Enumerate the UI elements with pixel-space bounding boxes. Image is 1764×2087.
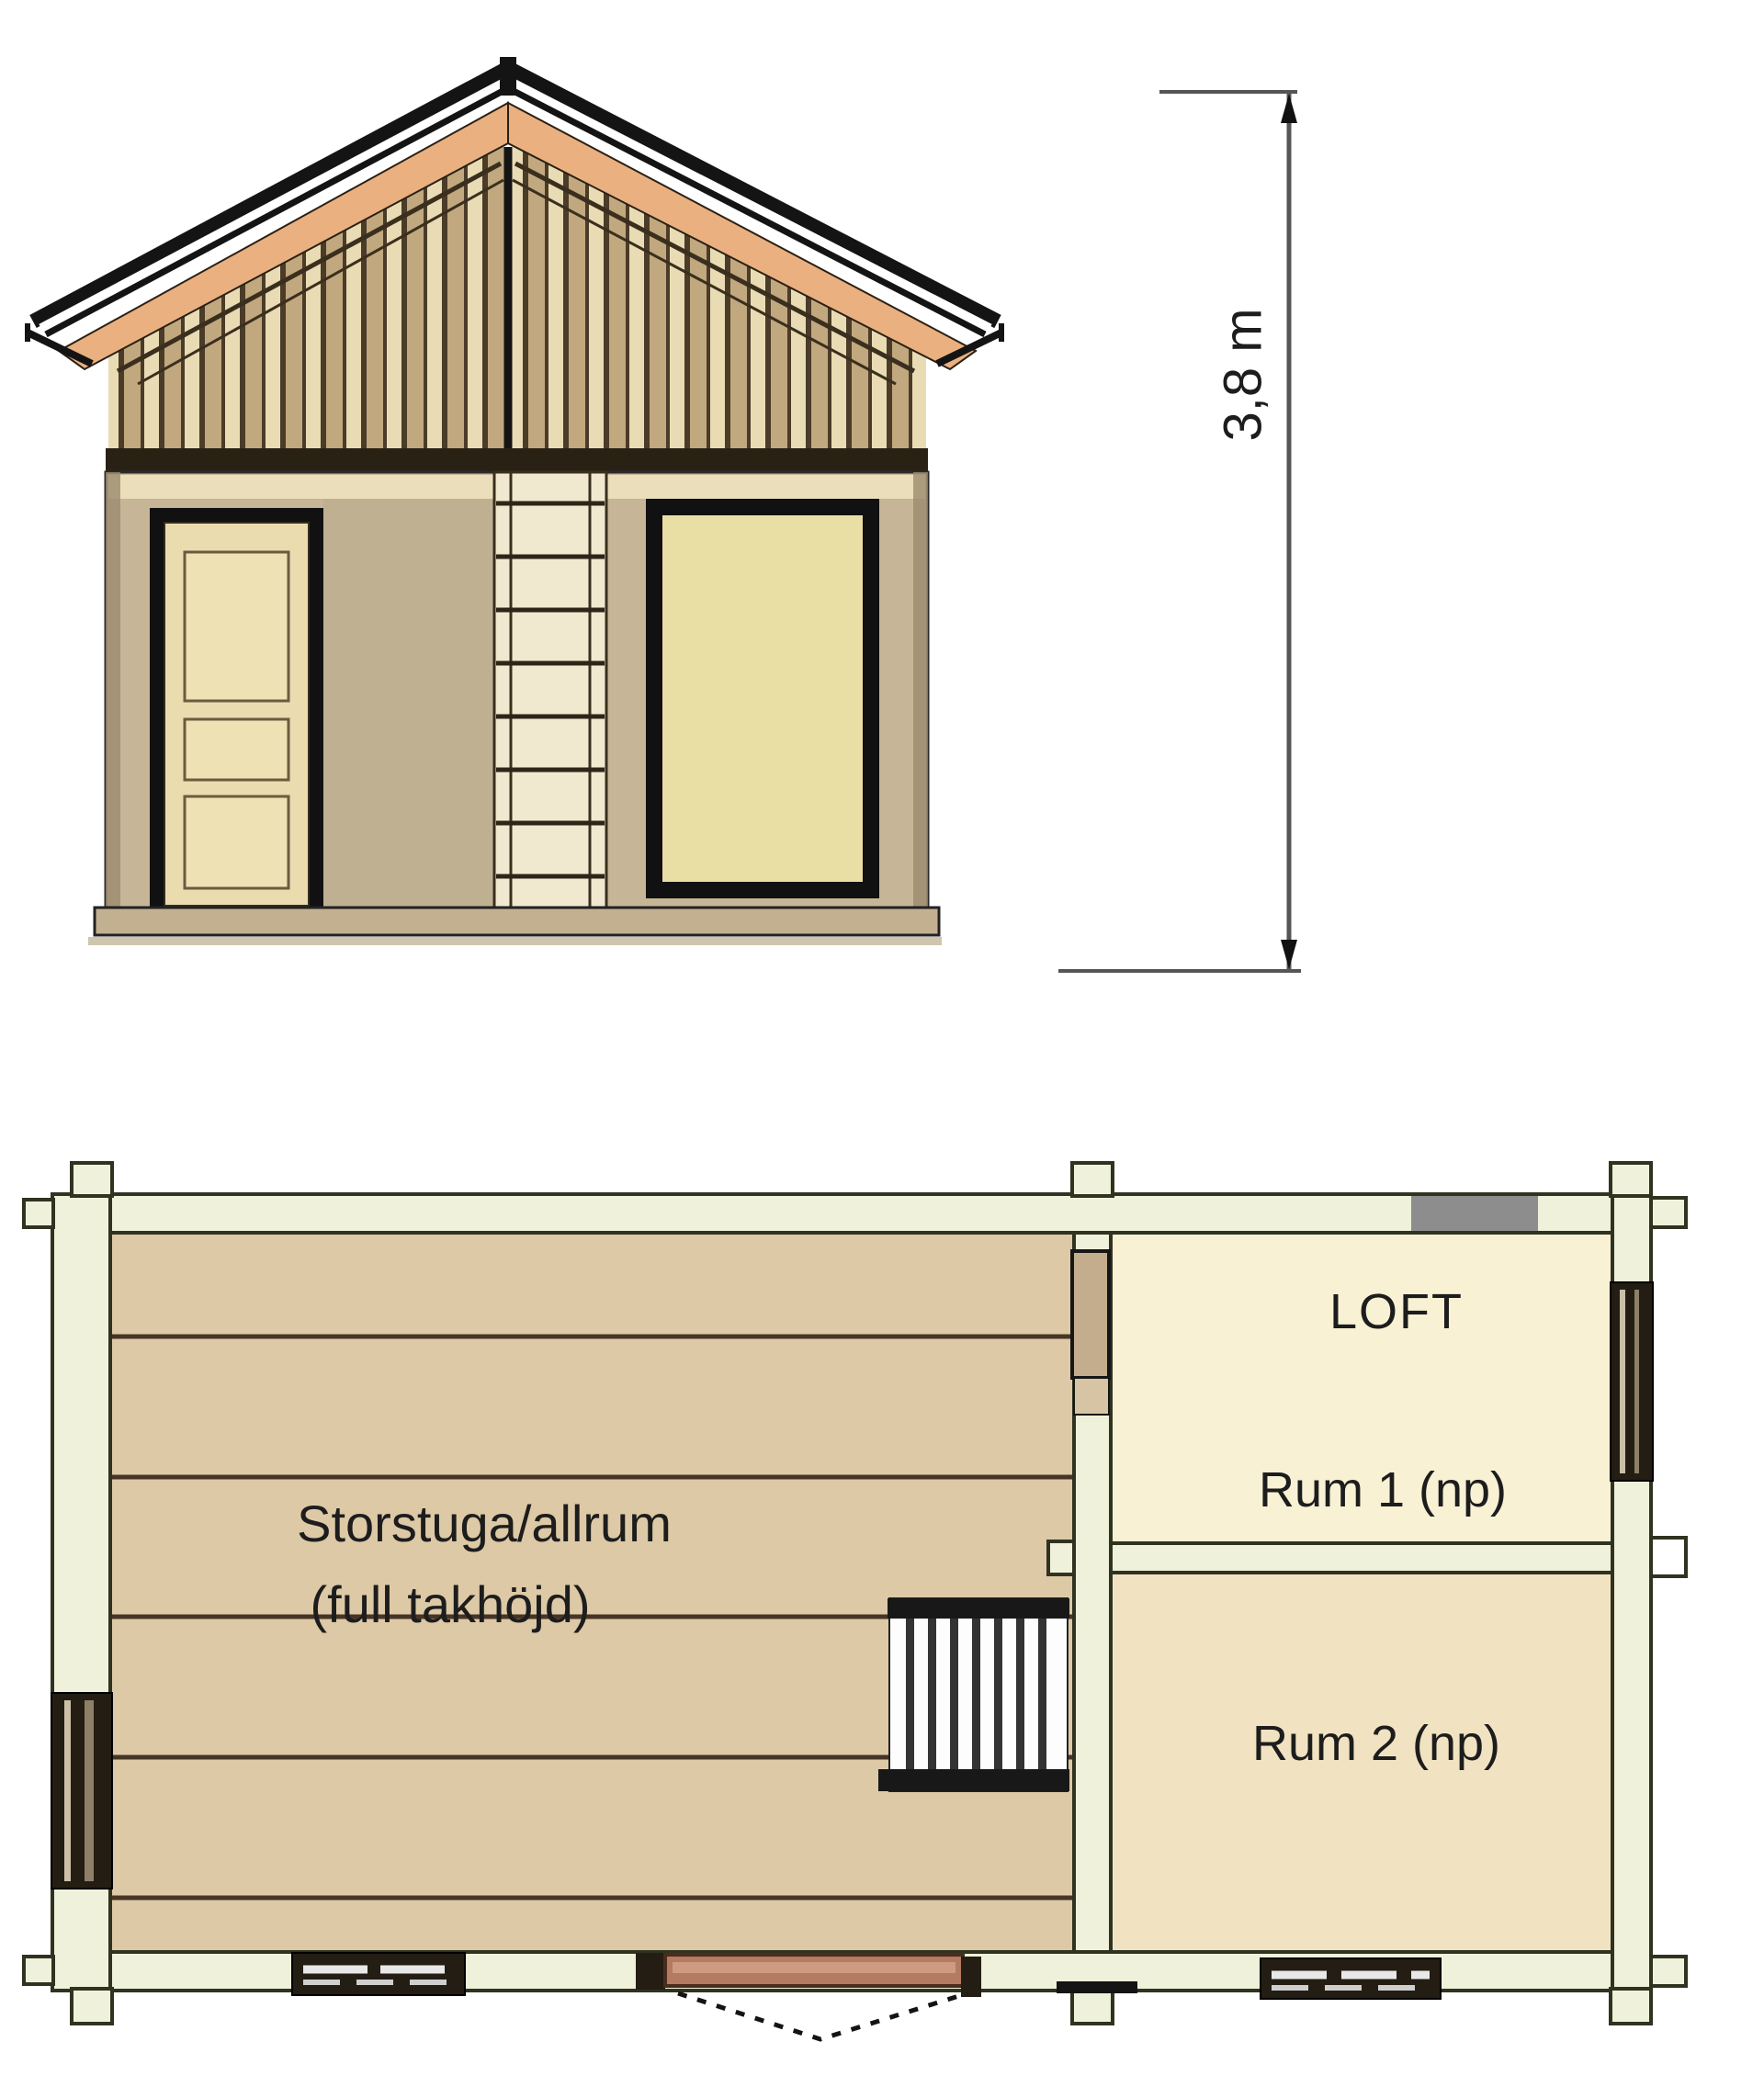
window-left-wall	[51, 1693, 112, 1889]
door-post-right	[961, 1957, 981, 1997]
stairs-top-rail	[888, 1598, 1069, 1619]
window-left-glass-line	[64, 1700, 71, 1881]
label-storstuga-sub: (full takhöjd)	[310, 1575, 590, 1633]
dimension-label: 3,8 m	[1213, 308, 1272, 441]
door-swing-dashed	[678, 1993, 967, 2039]
interior-wall-door-panel	[1072, 1251, 1109, 1378]
label-rum1: Rum 1 (np)	[1259, 1462, 1507, 1517]
corner-log-joint	[1072, 1163, 1113, 1196]
label-rum2: Rum 2 (np)	[1252, 1716, 1500, 1771]
wall-left-shade	[106, 472, 120, 908]
door-panel-bottom	[185, 796, 288, 888]
window-top-gray	[1411, 1196, 1538, 1231]
window-bottom-right	[1261, 1958, 1441, 1999]
interior-wall-door-jamb	[1074, 1378, 1109, 1415]
interior-wall-bottom-log	[1057, 1981, 1137, 1993]
entry-door-plan	[636, 1953, 981, 2039]
window-right-glass-line	[1620, 1290, 1625, 1473]
ridge-cap	[500, 57, 516, 96]
corner-log-joint	[24, 1200, 53, 1227]
window-right-glass-line2	[1634, 1290, 1639, 1473]
loft-stairs	[878, 1598, 1069, 1791]
elevation-window	[646, 499, 879, 898]
corner-log-joint	[1651, 1198, 1686, 1227]
label-loft: LOFT	[1329, 1284, 1464, 1339]
corner-log-joint	[24, 1957, 53, 1984]
base-shadow	[88, 937, 942, 945]
corner-log-joint	[72, 1163, 112, 1196]
storstuga-floor	[110, 1233, 1074, 1950]
label-storstuga: Storstuga/allrum	[297, 1495, 672, 1552]
wall-right-shade	[913, 472, 928, 908]
dimension-arrow-down	[1281, 940, 1297, 969]
door-panel-top	[185, 552, 288, 701]
cabin-drawing-sheet: 3,8 m	[0, 0, 1764, 2087]
corner-log-joint	[1651, 1957, 1686, 1986]
floor-plan-view: Storstuga/allrum (full takhöjd) LOFT Rum…	[24, 1163, 1686, 2039]
divider-wall-end	[1651, 1538, 1686, 1576]
foundation-base	[88, 908, 942, 945]
window-glass	[662, 515, 863, 882]
entry-door-elevation	[150, 508, 323, 908]
corner-log-joint	[72, 1989, 112, 2024]
window-bottom-left	[292, 1953, 465, 1995]
cabin-diagram: 3,8 m	[0, 0, 1764, 2087]
loft-floor-band	[106, 448, 928, 472]
window-bottom-left-frame	[292, 1953, 465, 1995]
interior-wall-divider	[1111, 1543, 1612, 1573]
elevation-view: 3,8 m	[28, 57, 1301, 971]
door-post-left	[636, 1953, 665, 1990]
door-panel-middle	[185, 719, 288, 780]
stairs-bottom-rail	[878, 1769, 1069, 1791]
base-band	[95, 908, 939, 935]
window-right-wall	[1611, 1282, 1653, 1481]
dimension-arrow-up	[1281, 94, 1297, 123]
corner-log-joint	[1611, 1163, 1651, 1196]
window-left-frame	[51, 1693, 112, 1889]
height-dimension: 3,8 m	[1058, 92, 1301, 971]
divider-junction-block	[1048, 1541, 1074, 1574]
loft-ladder	[494, 472, 606, 908]
window-left-glass-line2	[85, 1700, 94, 1881]
door-leaf-highlight	[673, 1962, 955, 1973]
window-right-frame	[1611, 1282, 1653, 1481]
corner-log-joint	[1611, 1989, 1651, 2024]
wall-mid-shade	[323, 499, 494, 908]
corner-log-joint	[1072, 1989, 1113, 2024]
